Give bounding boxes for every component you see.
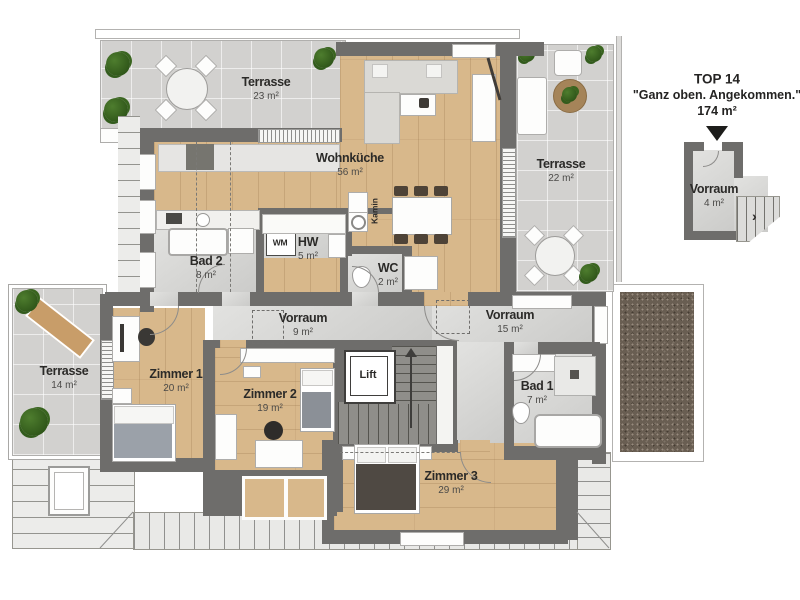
desk-zimmer1 (112, 316, 140, 362)
door-gap (460, 440, 490, 452)
inset-wall (722, 142, 734, 151)
room-label-bad1: Bad 1 7 m² (521, 380, 554, 406)
wall (340, 250, 348, 306)
room-area: 2 m² (378, 277, 398, 288)
dining-chair (394, 186, 408, 196)
room-area: 56 m² (316, 167, 384, 178)
window-east (594, 306, 608, 344)
bathtub-bad1 (534, 414, 602, 448)
inset-room-label: Vorraum 4 m² (690, 183, 738, 209)
room-name: Terrasse (242, 76, 291, 90)
pillow-zimmer2 (302, 370, 333, 386)
plant-icon (586, 46, 602, 62)
corridor-floor (457, 342, 504, 448)
plant-icon (20, 408, 48, 436)
wardrobe-zimmer2 (215, 414, 237, 460)
skylight-inner (54, 472, 84, 510)
room-name: Lift (359, 369, 376, 381)
dining-table (392, 197, 452, 235)
room-label-hw: HW 5 m² (298, 236, 318, 262)
terrace-e-sofa (517, 77, 547, 135)
cooktop (166, 213, 182, 224)
room-area: 9 m² (279, 327, 327, 338)
bathtub-bad2 (168, 228, 228, 256)
room-area: 7 m² (521, 395, 554, 406)
room-label-vorraum-w: Vorraum 9 m² (279, 312, 327, 338)
roof-southeast-band (577, 452, 611, 550)
room-label-kamin: Kamin (370, 198, 379, 224)
gravel-roof-area (620, 292, 694, 452)
roof-west-strip (118, 116, 140, 292)
room-area: 29 m² (424, 485, 477, 496)
room-area: 15 m² (486, 324, 534, 335)
blanket-zimmer2 (302, 392, 331, 428)
room-name: Terrasse (537, 158, 586, 172)
room-name: WM (273, 238, 288, 247)
inset-stairs (736, 196, 780, 242)
room-label-zimmer2: Zimmer 2 19 m² (243, 388, 296, 414)
shower-wc (404, 256, 438, 290)
room-name: Bad 2 (190, 255, 223, 269)
pillow-zimmer3 (388, 447, 417, 463)
desk-zimmer2 (255, 440, 303, 468)
sideboard-vorraum (512, 295, 572, 309)
shelf-zimmer2 (243, 366, 261, 378)
terrace-door-window (452, 44, 496, 58)
room-name: Vorraum (486, 309, 534, 323)
room-name: Zimmer 1 (149, 368, 202, 382)
dining-chair (394, 234, 408, 244)
fireplace-cabinet (348, 192, 368, 214)
plant-icon (562, 87, 577, 102)
blanket-zimmer3 (356, 464, 416, 510)
stairs-up-arrow (405, 348, 417, 357)
room-label-terrasse-w: Terrasse 14 m² (40, 365, 89, 391)
monitor-zimmer1 (120, 324, 124, 352)
hw-cabinet (328, 234, 346, 258)
window-south-zimmer3 (400, 532, 464, 546)
room-area: 8 m² (190, 270, 223, 281)
unit-title: TOP 14 (694, 72, 740, 87)
stairs-lower-flight (338, 402, 436, 444)
loggia-window (242, 476, 287, 520)
room-area: 4 m² (690, 198, 738, 209)
parapet-top-bar (95, 29, 520, 39)
coffee-table-tray (419, 98, 429, 108)
inset-stair-arrow: › (752, 208, 757, 224)
door-gap (352, 292, 378, 306)
coffee-table (400, 94, 436, 116)
shower-drain (570, 370, 579, 379)
tv-sideboard (472, 74, 496, 142)
chair-zimmer2 (264, 421, 283, 440)
room-area: 5 m² (298, 251, 318, 262)
room-name: Bad 1 (521, 380, 554, 394)
room-name: Zimmer 2 (243, 388, 296, 402)
nightstand-zimmer3 (342, 446, 355, 460)
wall (556, 446, 578, 540)
pillow-zimmer1 (114, 406, 174, 424)
plant-icon (580, 264, 598, 282)
room-area: 19 m² (243, 403, 296, 414)
room-area: 23 m² (242, 91, 291, 102)
room-name: Zimmer 3 (424, 470, 477, 484)
kitchen-sink (196, 213, 210, 227)
room-name: Vorraum (279, 312, 327, 326)
room-label-bad2: Bad 2 8 m² (190, 255, 223, 281)
room-name: Terrasse (40, 365, 89, 379)
terrace-e-armchair (554, 50, 582, 76)
wall (504, 446, 604, 460)
door-gap (220, 340, 246, 348)
hw-appliances (262, 214, 346, 234)
room-label-vorraum-e: Vorraum 15 m² (486, 309, 534, 335)
room-label-wm: WM (273, 238, 288, 247)
kitchen-island (186, 144, 214, 170)
room-label-lift: Lift (359, 369, 376, 381)
roof-slope-dashed (340, 452, 460, 453)
room-label-zimmer3: Zimmer 3 29 m² (424, 470, 477, 496)
stairs-direction-line (410, 356, 412, 428)
door-gap (514, 342, 538, 354)
room-area: 14 m² (40, 380, 89, 391)
room-name: WC (378, 262, 398, 276)
nightstand-zimmer1 (112, 388, 132, 404)
inset-wall (684, 231, 740, 240)
dining-chair (434, 186, 448, 196)
plant-icon (314, 48, 334, 68)
nightstand-zimmer3 (419, 446, 432, 460)
parapet-right-line (616, 36, 622, 282)
pillow-zimmer3 (357, 447, 386, 463)
room-name: Wohnküche (316, 152, 384, 166)
door-gap (222, 292, 250, 306)
unit-total-area: 174 m² (697, 104, 737, 118)
room-label-wc: WC 2 m² (378, 262, 398, 288)
room-name: Kamin (370, 198, 379, 224)
door-gap (150, 292, 178, 306)
closet-vorraum (240, 348, 335, 363)
glass-door-east (502, 148, 516, 238)
inset-wall (734, 142, 743, 178)
floorplan-canvas: Terrasse 23 m² Wohnküche 56 m² Terrasse … (0, 0, 800, 600)
room-label-zimmer1: Zimmer 1 20 m² (149, 368, 202, 394)
sofa-pillow (372, 64, 388, 78)
room-name: Vorraum (690, 183, 738, 197)
plant-icon (106, 52, 130, 76)
blanket-zimmer1 (114, 424, 172, 458)
stairs-landing (436, 346, 453, 444)
plant-icon (16, 290, 38, 312)
location-arrow-icon (706, 126, 728, 141)
roof-slope-dashed (230, 142, 231, 292)
room-label-terrasse-e: Terrasse 22 m² (537, 158, 586, 184)
dining-chair (414, 186, 428, 196)
dining-chair (414, 234, 428, 244)
room-label-terrasse-nw: Terrasse 23 m² (242, 76, 291, 102)
fireplace-flue (351, 215, 366, 230)
washbasin-bad2 (228, 228, 254, 254)
glass-door-north (258, 129, 340, 143)
room-area: 20 m² (149, 383, 202, 394)
room-name: HW (298, 236, 318, 250)
loggia-window (285, 476, 327, 520)
room-label-wohnkueche: Wohnküche 56 m² (316, 152, 384, 178)
dining-chair (434, 234, 448, 244)
sofa-pillow (426, 64, 442, 78)
sofa-chaise (364, 92, 400, 144)
room-area: 22 m² (537, 173, 586, 184)
unit-slogan: "Ganz oben. Angekommen." (633, 88, 800, 102)
